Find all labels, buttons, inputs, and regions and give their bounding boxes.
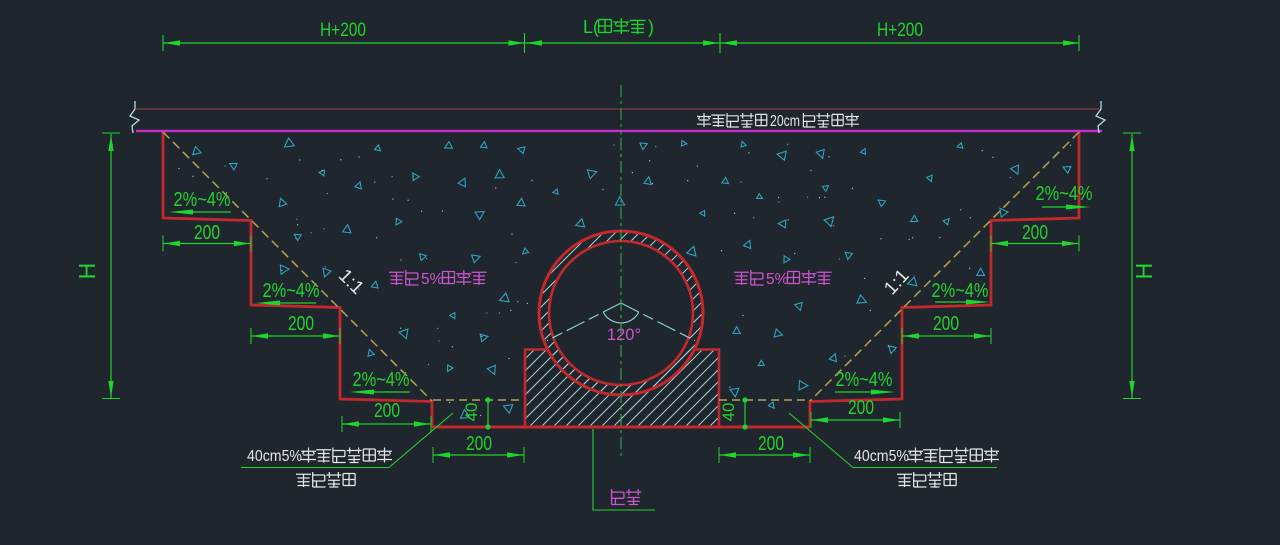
svg-text:40cm5%: 40cm5% (247, 448, 302, 465)
svg-text:20cm: 20cm (770, 113, 800, 130)
svg-text:200: 200 (848, 397, 874, 419)
svg-text:H+200: H+200 (877, 20, 923, 41)
svg-text:5%: 5% (766, 271, 789, 288)
svg-text:40cm5%: 40cm5% (854, 448, 909, 465)
svg-text:2%~4%: 2%~4% (1036, 183, 1093, 205)
svg-text:2%~4%: 2%~4% (836, 369, 893, 391)
svg-text:200: 200 (1022, 222, 1048, 244)
svg-text:H: H (74, 263, 100, 280)
svg-text:200: 200 (374, 400, 400, 422)
svg-text:2%~4%: 2%~4% (932, 280, 989, 302)
svg-text:): ) (648, 17, 654, 37)
svg-text:5%: 5% (421, 271, 444, 288)
svg-text:200: 200 (288, 313, 314, 335)
svg-text:40: 40 (462, 403, 481, 422)
svg-text:H+200: H+200 (320, 20, 366, 41)
svg-text:2%~4%: 2%~4% (174, 189, 231, 211)
svg-text:2%~4%: 2%~4% (353, 369, 410, 391)
svg-text:200: 200 (758, 433, 784, 455)
svg-text:40: 40 (719, 403, 738, 422)
svg-text:L(: L( (583, 17, 599, 37)
svg-text:200: 200 (466, 433, 492, 455)
svg-text:2%~4%: 2%~4% (263, 280, 320, 302)
svg-text:H: H (1131, 263, 1157, 280)
svg-text:200: 200 (933, 313, 959, 335)
svg-text:120°: 120° (607, 326, 641, 344)
svg-text:200: 200 (194, 222, 220, 244)
